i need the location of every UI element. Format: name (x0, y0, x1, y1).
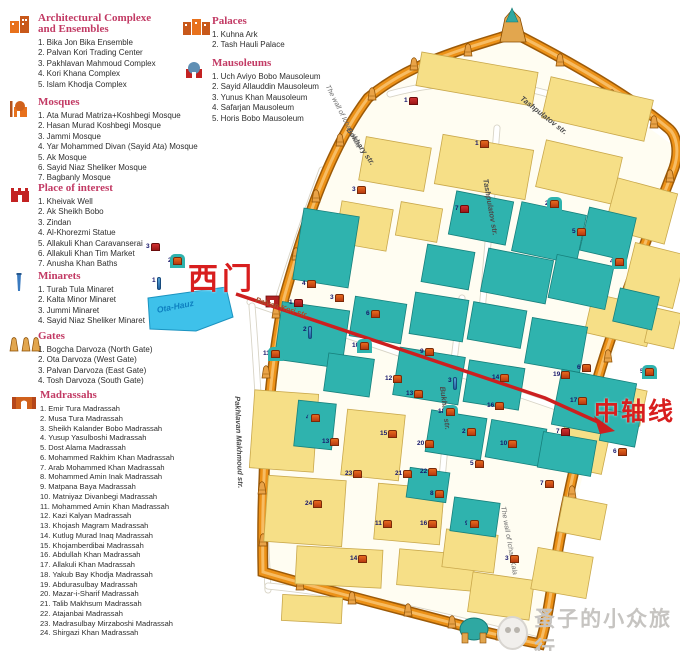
legend-item: 1.Emir Tura Madrassah (40, 404, 174, 414)
map-marker: 18 (438, 408, 455, 416)
monument-icon (446, 408, 455, 416)
monument-icon (409, 97, 418, 105)
map-marker: 1 (404, 97, 418, 105)
complex-icon (8, 13, 34, 35)
legend-item: 19.Abdurasulbay Madrassah (40, 580, 174, 590)
map-marker: 12 (385, 375, 402, 383)
monument-icon (308, 326, 312, 339)
legend-item: 5.Allakuli Khan Caravanserai (38, 239, 143, 249)
monument-icon (500, 374, 509, 382)
monument-icon (383, 520, 392, 528)
map-marker: 9 (465, 520, 479, 528)
legend-section-mosques: Mosques 1.Ata Murad Matriza+Koshbegi Mos… (38, 97, 198, 184)
monument-icon (645, 368, 654, 376)
marker-number: 6 (577, 364, 581, 371)
map-marker: 3 (352, 186, 366, 194)
legend-items: 1.Bika Jon Bika Ensemble2.Palvan Kori Tr… (38, 38, 156, 90)
legend-section-gates: Gates 1.Bogcha Darvoza (North Gate)2.Ota… (38, 331, 153, 387)
marker-number: 3 (146, 243, 150, 250)
map-marker: 15 (380, 430, 397, 438)
marker-number: 14 (492, 374, 499, 381)
monument-icon (561, 428, 570, 436)
monument-icon (508, 440, 517, 448)
building-block (557, 496, 607, 540)
legend-item: 12.Kazi Kalyan Madrassah (40, 511, 174, 521)
legend-item: 14.Kutlug Murad Inaq Madrassah (40, 531, 174, 541)
legend-item: 3.Pakhlavan Mahmoud Complex (38, 59, 156, 69)
building-block (295, 546, 383, 588)
monument-icon (467, 428, 476, 436)
section-title: Place of interest (38, 183, 143, 194)
legend-item: 1.Ata Murad Matriza+Koshbegi Mosque (38, 111, 198, 121)
legend-item: 4.Safarjan Mausoleum (212, 103, 321, 113)
monument-icon (330, 438, 339, 446)
mosque-icon (8, 97, 34, 119)
map-marker: 2 (303, 326, 312, 339)
legend-item: 1.Kheivak Well (38, 197, 143, 207)
monument-icon (173, 257, 182, 265)
map-marker: 10 (352, 342, 369, 350)
monument-icon (615, 258, 624, 266)
marker-number: 9 (465, 520, 469, 527)
legend-item: 9.Matpana Baya Madrassah (40, 482, 174, 492)
legend-item: 16.Abdullah Khan Madrassah (40, 550, 174, 560)
legend-item: 5.Horis Bobo Mausoleum (212, 114, 321, 124)
legend-item: 4.Yusup Yasulboshi Madrassah (40, 433, 174, 443)
marker-number: 7 (455, 205, 459, 212)
map-marker: 3 (505, 555, 519, 563)
monument-icon (388, 430, 397, 438)
monument-block (409, 292, 469, 342)
legend-item: 1.Uch Aviyo Bobo Mausoleum (212, 72, 321, 82)
legend-item: 3.Jummi Minaret (38, 306, 145, 316)
monument-icon (313, 500, 322, 508)
legend-item: 10.Matniyaz Divanbegi Madrassah (40, 492, 174, 502)
legend-item: 18.Yakub Bay Khodja Madrassah (40, 570, 174, 580)
legend-item: 22.Atajanbai Madrassah (40, 609, 174, 619)
monument-icon (360, 342, 369, 350)
khiva-map-page: Architectural Complexe and Ensembles 1.B… (0, 0, 680, 651)
legend-item: 23.Madrasulbay Mirzaboshi Madrassah (40, 619, 174, 629)
marker-number: 4 (302, 280, 306, 287)
marker-number: 3 (352, 186, 356, 193)
marker-number: 1 (475, 140, 479, 147)
marker-number: 6 (613, 448, 617, 455)
monument-icon (425, 348, 434, 356)
legend-items: 1.Bogcha Darvoza (North Gate)2.Ota Darvo… (38, 345, 153, 387)
building-block (281, 594, 342, 623)
legend-items: 1.Turab Tula Minaret2.Kalta Minor Minare… (38, 285, 145, 327)
marker-number: 11 (375, 520, 382, 527)
marker-number: 7 (540, 480, 544, 487)
axis-annotation: 中轴线 (594, 392, 675, 428)
legend-item: 5.Ak Mosque (38, 153, 198, 163)
monument-block (421, 244, 475, 290)
monument-icon (470, 520, 479, 528)
marker-number: 12 (385, 375, 392, 382)
legend-item: 5.Dost Alama Madrassah (40, 443, 174, 453)
map-marker: 17 (570, 397, 587, 405)
marker-number: 11 (263, 350, 270, 357)
marker-number: 14 (350, 555, 357, 562)
legend-items: 1.Uch Aviyo Bobo Mausoleum2.Sayid Allaud… (212, 72, 321, 124)
legend-item: 21.Talib Makhsum Madrassah (40, 599, 174, 609)
legend-section-minarets: Minarets 1.Turab Tula Minaret2.Kalta Min… (38, 271, 145, 327)
monument-block (324, 353, 375, 397)
section-title: Mosques (38, 97, 198, 108)
building-block (395, 202, 442, 243)
north-gate (500, 8, 526, 42)
monument-icon (428, 468, 437, 476)
legend-item: 20.Mazar-i-Sharif Madrassah (40, 589, 174, 599)
legend-items: 1.Emir Tura Madrassah2.Musa Tura Madrass… (40, 404, 174, 638)
monument-icon (428, 520, 437, 528)
legend-item: 13.Khojash Magram Madrassah (40, 521, 174, 531)
map-marker: 2 (545, 200, 559, 208)
monument-icon (393, 375, 402, 383)
marker-number: 8 (430, 490, 434, 497)
marker-number: 6 (366, 310, 370, 317)
monument-icon (480, 140, 489, 148)
marker-number: 4 (306, 414, 310, 421)
legend-item: 3.Yunus Khan Mausoleum (212, 93, 321, 103)
monument-icon (294, 299, 303, 307)
map-marker: 5 (640, 368, 654, 376)
legend-items: 1.Kheivak Well2.Ak Sheikh Bobo3.Zindan4.… (38, 197, 143, 270)
marker-number: 10 (500, 440, 507, 447)
monument-icon (510, 555, 519, 563)
legend-section-madrassahs: Madrassahs 1.Emir Tura Madrassah2.Musa T… (40, 390, 174, 638)
legend-item: 4.Yar Mohammed Divan (Sayid Ata) Mosque (38, 142, 198, 152)
building-block (264, 475, 346, 546)
monument-icon (157, 277, 161, 290)
map-marker: 4 (302, 280, 316, 288)
map-marker: 13 (322, 438, 339, 446)
section-title: Madrassahs (40, 390, 174, 401)
legend-section-palaces: Palaces 1.Kuhna Ark2.Tash Hauli Palace (212, 16, 285, 51)
map-marker: 16 (487, 402, 504, 410)
map-marker: 7 (540, 480, 554, 488)
legend-item: 2.Sayid Allauddin Mausoleum (212, 82, 321, 92)
minaret-icon (8, 271, 34, 293)
map-marker: 21 (395, 470, 412, 478)
map-marker: 23 (345, 470, 362, 478)
monument-icon (578, 397, 587, 405)
legend-item: 6.Allakuli Khan Tim Market (38, 249, 143, 259)
monument-icon (435, 490, 444, 498)
map-marker: 11 (375, 520, 392, 528)
legend-item: 2.Palvan Kori Trading Center (38, 48, 156, 58)
gate-icon (8, 331, 34, 353)
monument-icon (495, 402, 504, 410)
marker-number: 5 (640, 368, 644, 375)
monument-icon (271, 350, 280, 358)
marker-number: 4 (610, 258, 614, 265)
legend-item: 1.Bogcha Darvoza (North Gate) (38, 345, 153, 355)
marker-number: 16 (487, 402, 494, 409)
marker-number: 9 (420, 348, 424, 355)
map-marker: 6 (366, 310, 380, 318)
monument-icon (460, 205, 469, 213)
monument-block (450, 497, 500, 537)
map-marker: 20 (417, 440, 434, 448)
map-marker: 10 (500, 440, 517, 448)
legend-item: 3.Zindan (38, 218, 143, 228)
monument-icon (475, 460, 484, 468)
section-title: Minarets (38, 271, 145, 282)
legend-item: 5.Islam Khodja Complex (38, 80, 156, 90)
map-marker: 3 (146, 243, 160, 251)
map-marker: 14 (492, 374, 509, 382)
marker-number: 1 (289, 299, 293, 306)
marker-number: 21 (395, 470, 402, 477)
map-marker: 14 (350, 555, 367, 563)
legend-item: 4.Kori Khana Complex (38, 69, 156, 79)
marker-number: 24 (305, 500, 312, 507)
marker-number: 22 (420, 468, 427, 475)
map-marker: 11 (263, 350, 280, 358)
map-marker: 5 (470, 460, 484, 468)
map-marker: 3 (448, 377, 457, 390)
legend-item: 2.Ak Sheikh Bobo (38, 207, 143, 217)
legend-item: 11.Mohammed Amin Khan Madrassah (40, 502, 174, 512)
legend-item: 2.Kalta Minor Minaret (38, 295, 145, 305)
marker-number: 10 (352, 342, 359, 349)
legend-item: 1.Turab Tula Minaret (38, 285, 145, 295)
legend-section-complexes: Architectural Complexe and Ensembles 1.B… (38, 13, 156, 90)
legend-item: 4.Sayid Niaz Sheliker Minaret (38, 316, 145, 326)
legend-section-mausoleums: Mausoleums 1.Uch Aviyo Bobo Mausoleum2.S… (212, 58, 321, 124)
legend-item: 1.Bika Jon Bika Ensemble (38, 38, 156, 48)
monument-icon (425, 440, 434, 448)
marker-number: 16 (420, 520, 427, 527)
monument-icon (545, 480, 554, 488)
marker-number: 18 (438, 408, 445, 415)
marker-number: 5 (572, 228, 576, 235)
monument-icon (151, 243, 160, 251)
south-gate (460, 618, 488, 643)
legend-item: 2.Hasan Murad Koshbegi Mosque (38, 121, 198, 131)
legend-item: 3.Palvan Darvoza (East Gate) (38, 366, 153, 376)
monument-icon (577, 228, 586, 236)
monument-icon (357, 186, 366, 194)
marker-number: 1 (152, 277, 156, 284)
mausoleum-icon (182, 58, 208, 80)
monument-icon (371, 310, 380, 318)
section-title: Mausoleums (212, 58, 321, 69)
marker-number: 13 (322, 438, 329, 445)
legend-item: 4.Tosh Darvoza (South Gate) (38, 376, 153, 386)
legend-item: 17.Allakuli Khan Madrassah (40, 560, 174, 570)
legend-item: 6.Sayid Niaz Sheliker Mosque (38, 163, 198, 173)
map-marker: 6 (613, 448, 627, 456)
map-marker: 1 (289, 299, 303, 307)
marker-number: 2 (303, 326, 307, 333)
map-marker: 5 (572, 228, 586, 236)
map-marker: 19 (553, 371, 570, 379)
marker-number: 5 (470, 460, 474, 467)
map-marker: 7 (556, 428, 570, 436)
monument-icon (358, 555, 367, 563)
section-title: Gates (38, 331, 153, 342)
marker-number: 1 (404, 97, 408, 104)
landmark-icon (8, 183, 34, 205)
marker-number: 23 (345, 470, 352, 477)
map-marker: 8 (430, 490, 444, 498)
map-marker: 16 (420, 520, 437, 528)
monument-block (293, 208, 360, 288)
map-marker: 2 (168, 257, 182, 265)
monument-icon (307, 280, 316, 288)
monument-icon (561, 371, 570, 379)
legend-item: 6.Mohammed Rakhim Khan Madrassah (40, 453, 174, 463)
map-marker: 4 (610, 258, 624, 266)
monument-icon (311, 414, 320, 422)
monument-icon (582, 364, 591, 372)
marker-number: 19 (553, 371, 560, 378)
marker-number: 7 (556, 428, 560, 435)
marker-number: 3 (448, 377, 452, 384)
marker-number: 2 (168, 257, 172, 264)
legend-item: 3.Jammi Mosque (38, 132, 198, 142)
legend-item: 2.Tash Hauli Palace (212, 40, 285, 50)
legend-item: 3.Sheikh Kalander Bobo Madrassah (40, 424, 174, 434)
legend-item: 1.Kuhna Ark (212, 30, 285, 40)
madrassah-icon (10, 390, 36, 412)
map-marker: 3 (330, 294, 344, 302)
legend-section-interest: Place of interest 1.Kheivak Well2.Ak She… (38, 183, 143, 270)
legend-item: 24.Shirgazi Khan Madrassah (40, 628, 174, 638)
watermark-logo-icon (497, 616, 528, 650)
watermark-text: 蚤子的小众旅行 (534, 603, 680, 651)
marker-number: 3 (330, 294, 334, 301)
marker-number: 17 (570, 397, 577, 404)
monument-icon (453, 377, 457, 390)
legend-item: 7.Anusha Khan Baths (38, 259, 143, 269)
marker-number: 3 (505, 555, 509, 562)
marker-number: 2 (545, 200, 549, 207)
section-title: Palaces (212, 16, 285, 27)
marker-number: 15 (380, 430, 387, 437)
legend-item: 2.Ota Darvoza (West Gate) (38, 355, 153, 365)
monument-icon (353, 470, 362, 478)
legend-items: 1.Ata Murad Matriza+Koshbegi Mosque2.Has… (38, 111, 198, 184)
legend-item: 4.Al-Khorezmi Statue (38, 228, 143, 238)
palace-icon (182, 16, 208, 38)
monument-icon (618, 448, 627, 456)
map-marker: 22 (420, 468, 437, 476)
map-marker: 24 (305, 500, 322, 508)
monument-block (425, 410, 487, 460)
map-marker: 2 (462, 428, 476, 436)
map-marker: 7 (455, 205, 469, 213)
watermark: 蚤子的小众旅行 (497, 603, 680, 651)
marker-number: 13 (406, 390, 413, 397)
legend-item: 8.Mohammed Amin Inak Madrassah (40, 472, 174, 482)
marker-number: 2 (462, 428, 466, 435)
legend-item: 2.Musa Tura Madrassah (40, 414, 174, 424)
map-marker: 6 (577, 364, 591, 372)
legend-items: 1.Kuhna Ark2.Tash Hauli Palace (212, 30, 285, 51)
west-gate-annotation: 西门 (188, 254, 256, 298)
map-marker: 1 (152, 277, 161, 290)
marker-number: 20 (417, 440, 424, 447)
map-marker: 13 (406, 390, 423, 398)
monument-icon (403, 470, 412, 478)
legend-item: 7.Arab Mohammed Khan Madrassah (40, 463, 174, 473)
wall-tower (410, 58, 418, 70)
section-title: Architectural Complexe and Ensembles (38, 13, 156, 35)
legend-item: 15.Khojamberdibai Madrassah (40, 541, 174, 551)
map-marker: 1 (475, 140, 489, 148)
monument-icon (335, 294, 344, 302)
monument-icon (414, 390, 423, 398)
map-marker: 4 (306, 414, 320, 422)
monument-icon (550, 200, 559, 208)
map-marker: 9 (420, 348, 434, 356)
